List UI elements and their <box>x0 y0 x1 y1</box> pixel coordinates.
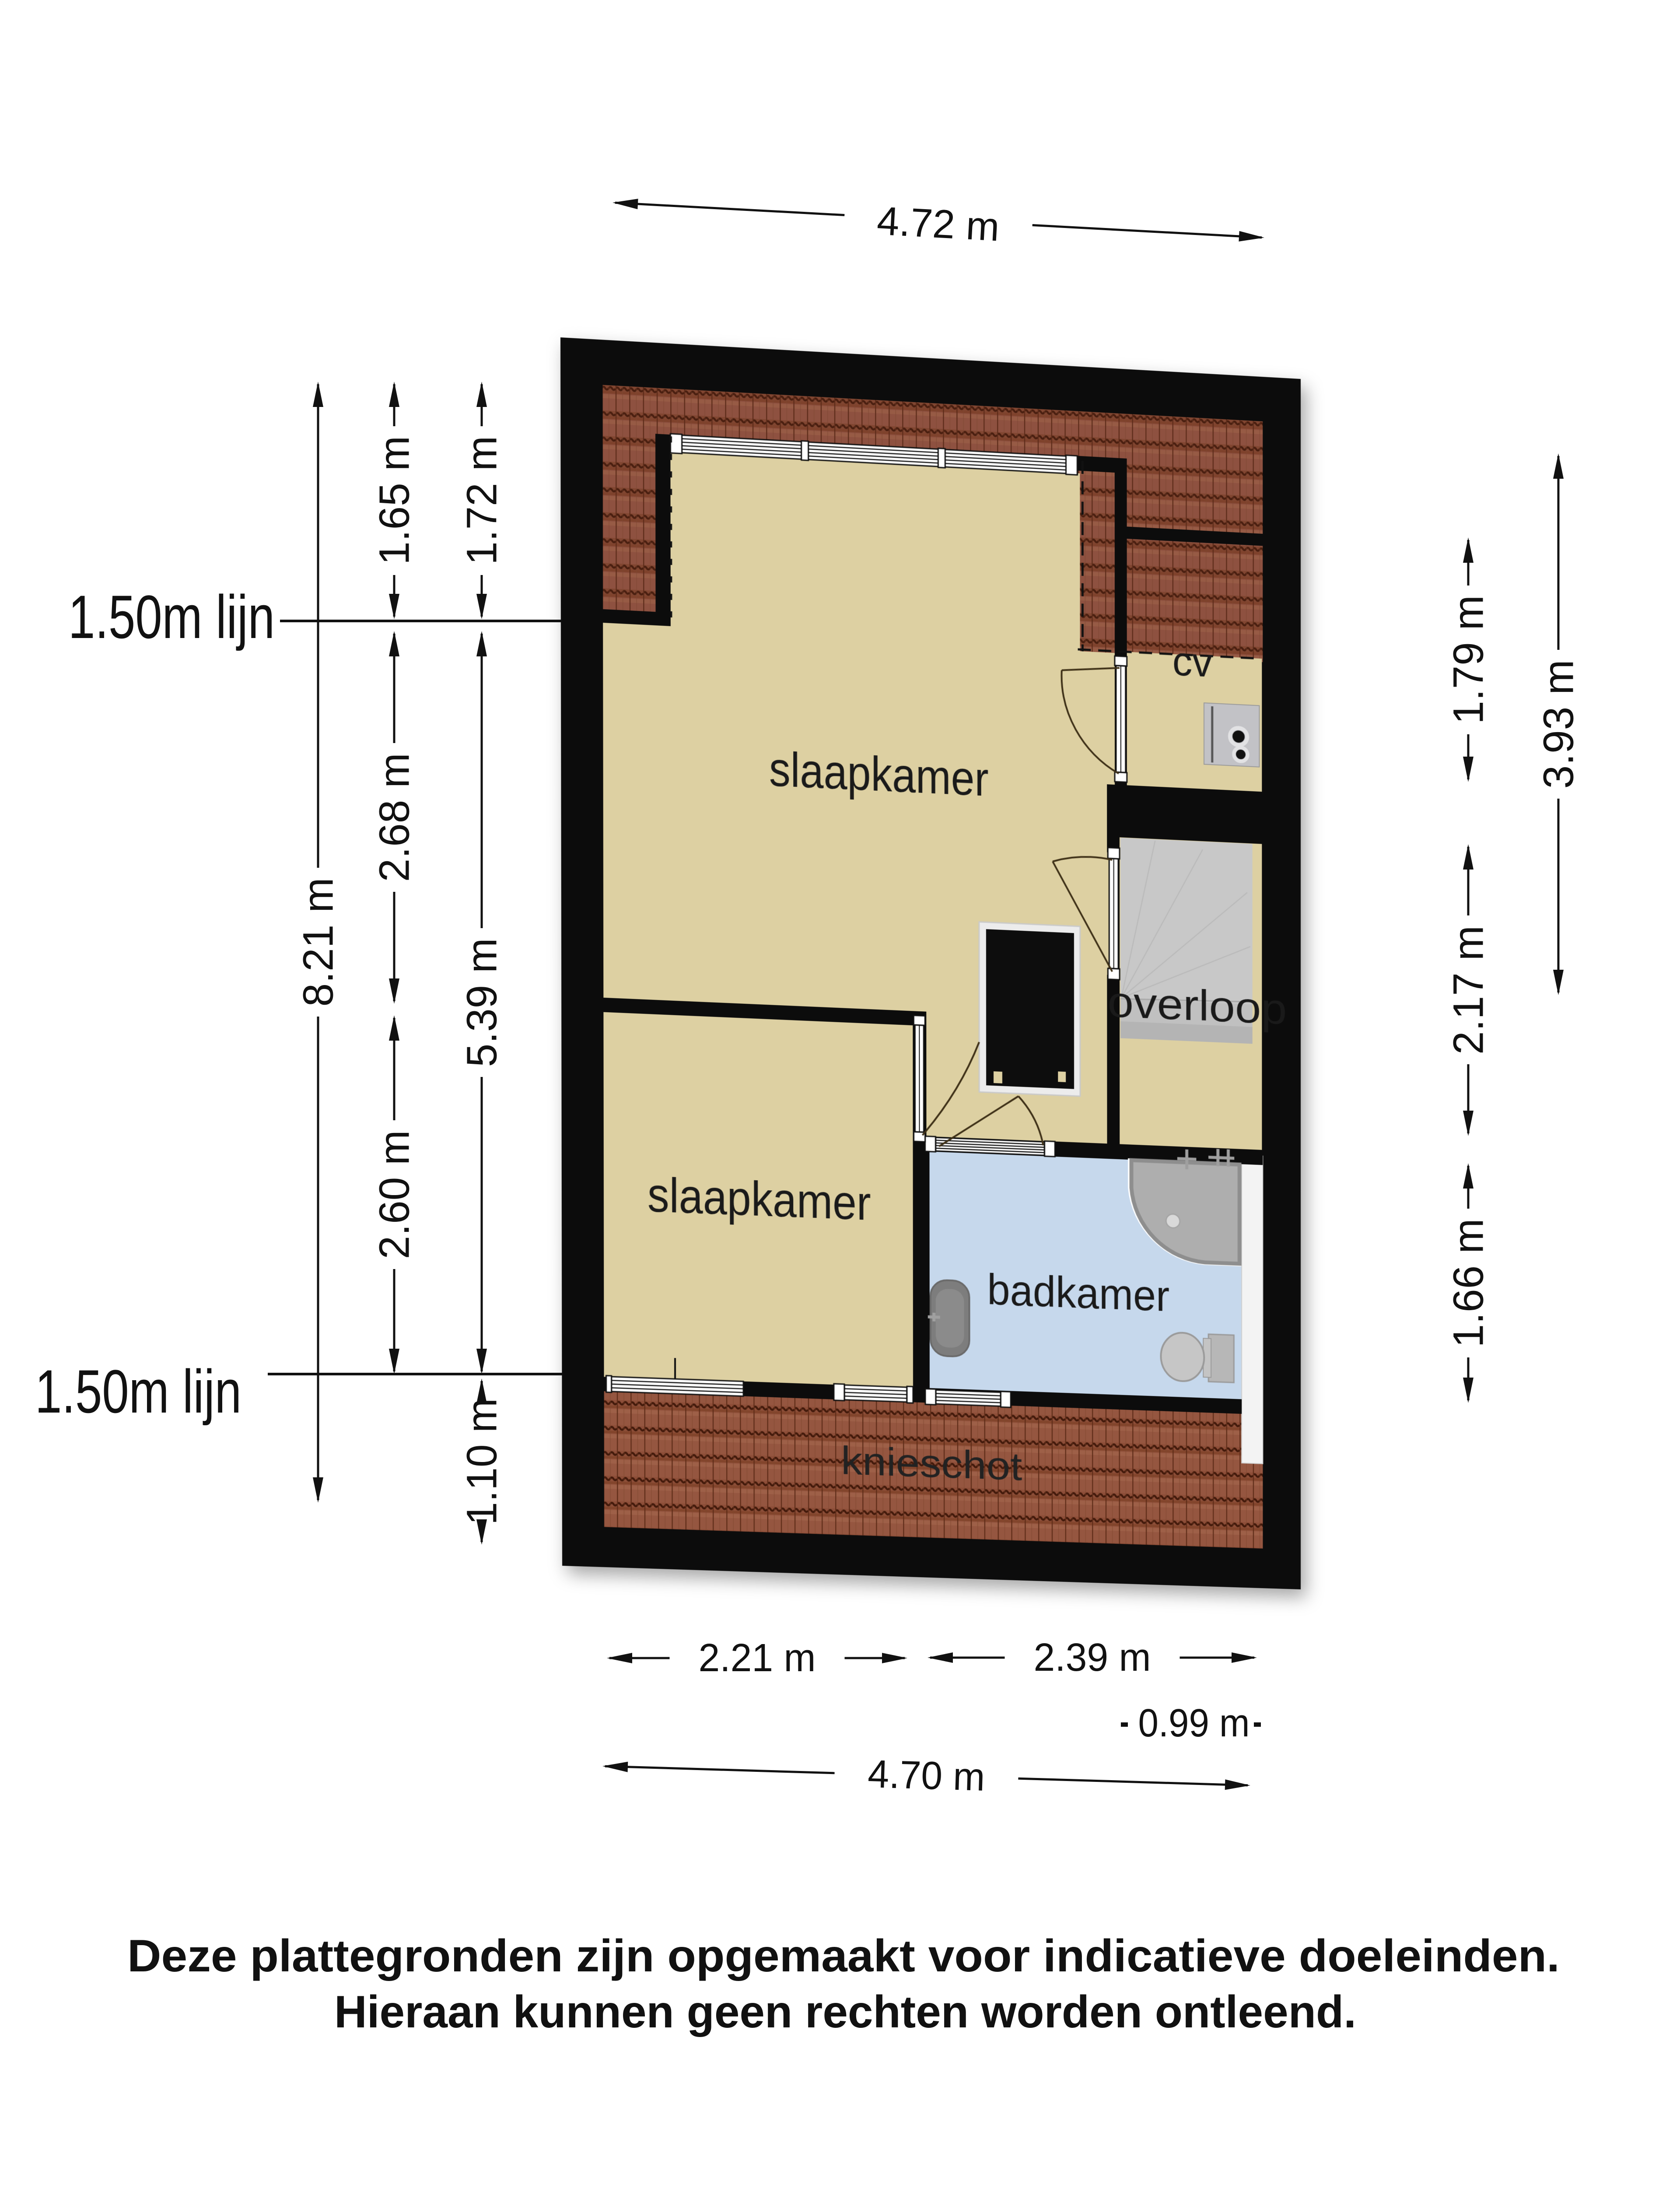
svg-text:1.79 m: 1.79 m <box>1445 595 1492 724</box>
svg-text:2.21 m: 2.21 m <box>699 1636 816 1680</box>
svg-text:1.50m lijn: 1.50m lijn <box>35 1357 241 1426</box>
svg-text:Deze plattegronden zijn opgema: Deze plattegronden zijn opgemaakt voor i… <box>127 1931 1560 1981</box>
svg-text:1.72 m: 1.72 m <box>458 436 506 565</box>
svg-text:Hieraan kunnen geen rechten wo: Hieraan kunnen geen rechten worden ontle… <box>334 1987 1356 2037</box>
svg-text:4.72 m: 4.72 m <box>876 199 1001 250</box>
svg-text:8.21 m: 8.21 m <box>294 878 342 1007</box>
svg-text:1.50m lijn: 1.50m lijn <box>68 582 275 651</box>
svg-text:2.68 m: 2.68 m <box>371 753 418 882</box>
svg-text:2.39 m: 2.39 m <box>1034 1636 1151 1680</box>
svg-text:1.66 m: 1.66 m <box>1445 1219 1492 1348</box>
svg-text:0.99 m: 0.99 m <box>1138 1701 1250 1745</box>
svg-text:2.60 m: 2.60 m <box>371 1130 418 1259</box>
svg-text:3.93 m: 3.93 m <box>1535 660 1582 789</box>
svg-text:5.39 m: 5.39 m <box>458 938 506 1067</box>
svg-text:1.10 m: 1.10 m <box>458 1398 506 1525</box>
svg-text:2.17 m: 2.17 m <box>1445 926 1492 1055</box>
svg-text:1.65 m: 1.65 m <box>371 436 418 565</box>
svg-text:4.70 m: 4.70 m <box>867 1752 986 1799</box>
